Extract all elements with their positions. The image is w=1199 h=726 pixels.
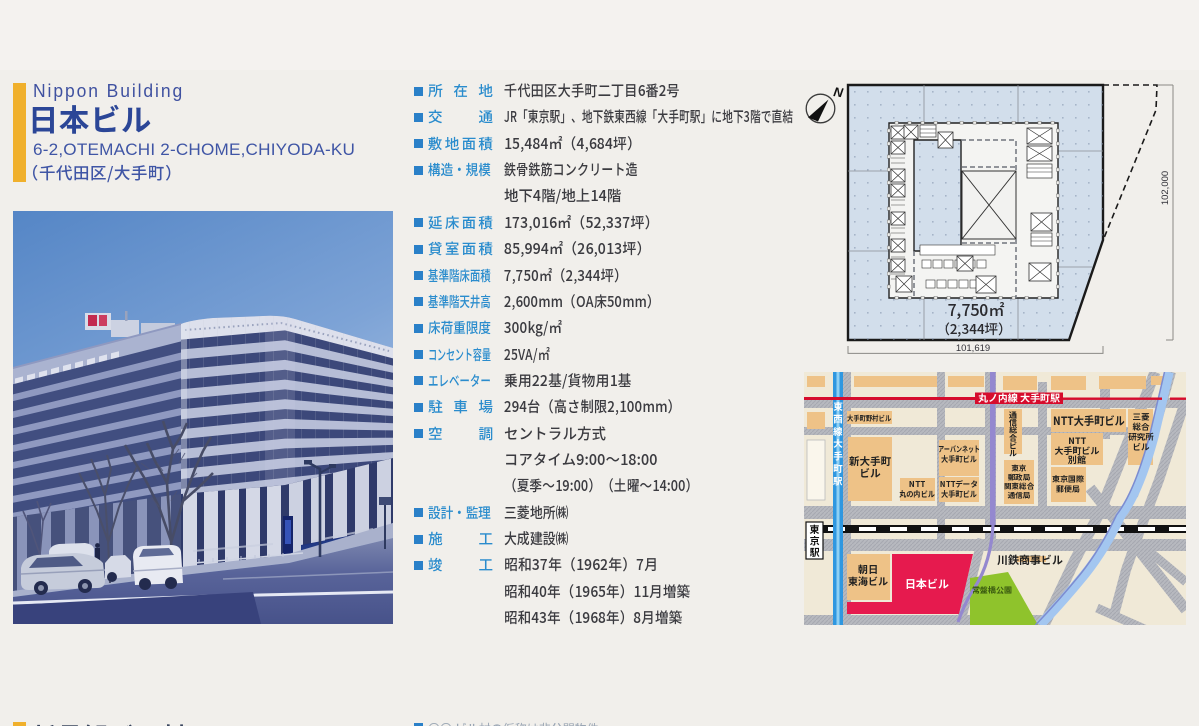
svg-text:（2,344坪）: （2,344坪） <box>936 318 1011 338</box>
svg-text:ル: ル <box>1009 448 1017 459</box>
svg-text:川鉄商事ビル: 川鉄商事ビル <box>997 552 1063 568</box>
svg-text:別館: 別館 <box>1068 453 1086 466</box>
svg-text:大手町野村ビル: 大手町野村ビル <box>847 413 891 424</box>
svg-text:通信局: 通信局 <box>1008 490 1031 501</box>
svg-text:102,000: 102,000 <box>1160 171 1171 205</box>
svg-text:丸ノ内線 大手町駅: 丸ノ内線 大手町駅 <box>977 391 1060 405</box>
svg-text:101,619: 101,619 <box>956 343 990 354</box>
svg-text:東海ビル: 東海ビル <box>847 573 888 588</box>
svg-text:郵便局: 郵便局 <box>1056 484 1080 495</box>
svg-text:大手町ビル: 大手町ビル <box>941 454 977 465</box>
svg-text:ビル: ビル <box>860 466 881 481</box>
svg-text:ビル: ビル <box>1132 441 1149 453</box>
svg-text:駅: 駅 <box>810 544 821 559</box>
svg-text:大手町ビル: 大手町ビル <box>941 489 977 500</box>
svg-text:N: N <box>833 84 845 100</box>
svg-text:丸の内ビル: 丸の内ビル <box>899 489 935 500</box>
svg-text:常盤橋公園: 常盤橋公園 <box>972 585 1012 596</box>
svg-text:日本ビル: 日本ビル <box>905 576 949 592</box>
svg-text:NTT大手町ビル: NTT大手町ビル <box>1053 413 1125 429</box>
svg-text:駅: 駅 <box>833 473 843 487</box>
